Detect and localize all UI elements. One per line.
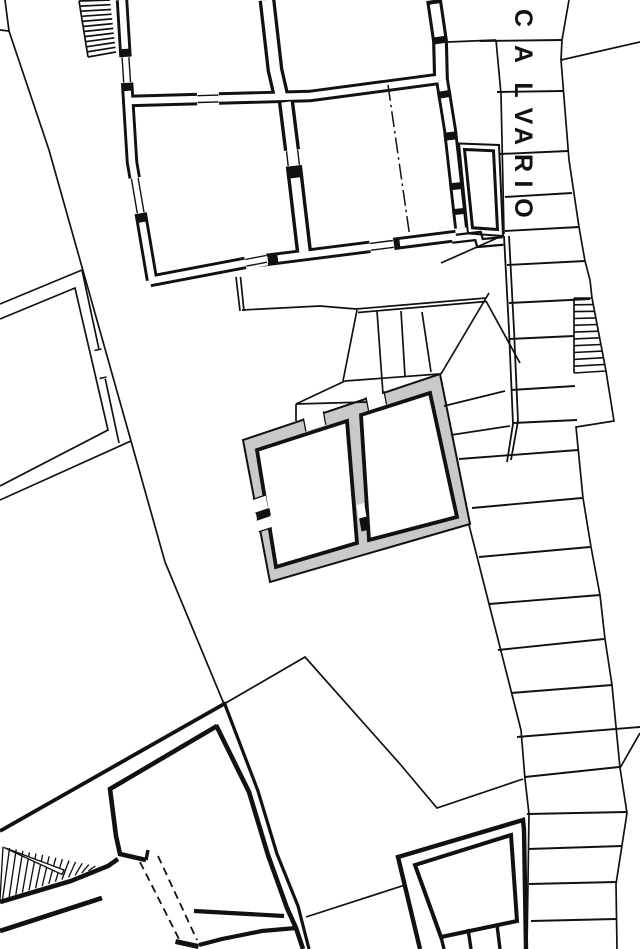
svg-text:O: O — [509, 198, 537, 217]
svg-text:I: I — [509, 181, 537, 188]
svg-text:A: A — [509, 127, 537, 145]
svg-text:A: A — [509, 45, 537, 63]
svg-text:C: C — [509, 9, 537, 27]
svg-text:R: R — [509, 154, 537, 172]
svg-text:L: L — [509, 82, 537, 97]
svg-text:V: V — [509, 108, 537, 125]
